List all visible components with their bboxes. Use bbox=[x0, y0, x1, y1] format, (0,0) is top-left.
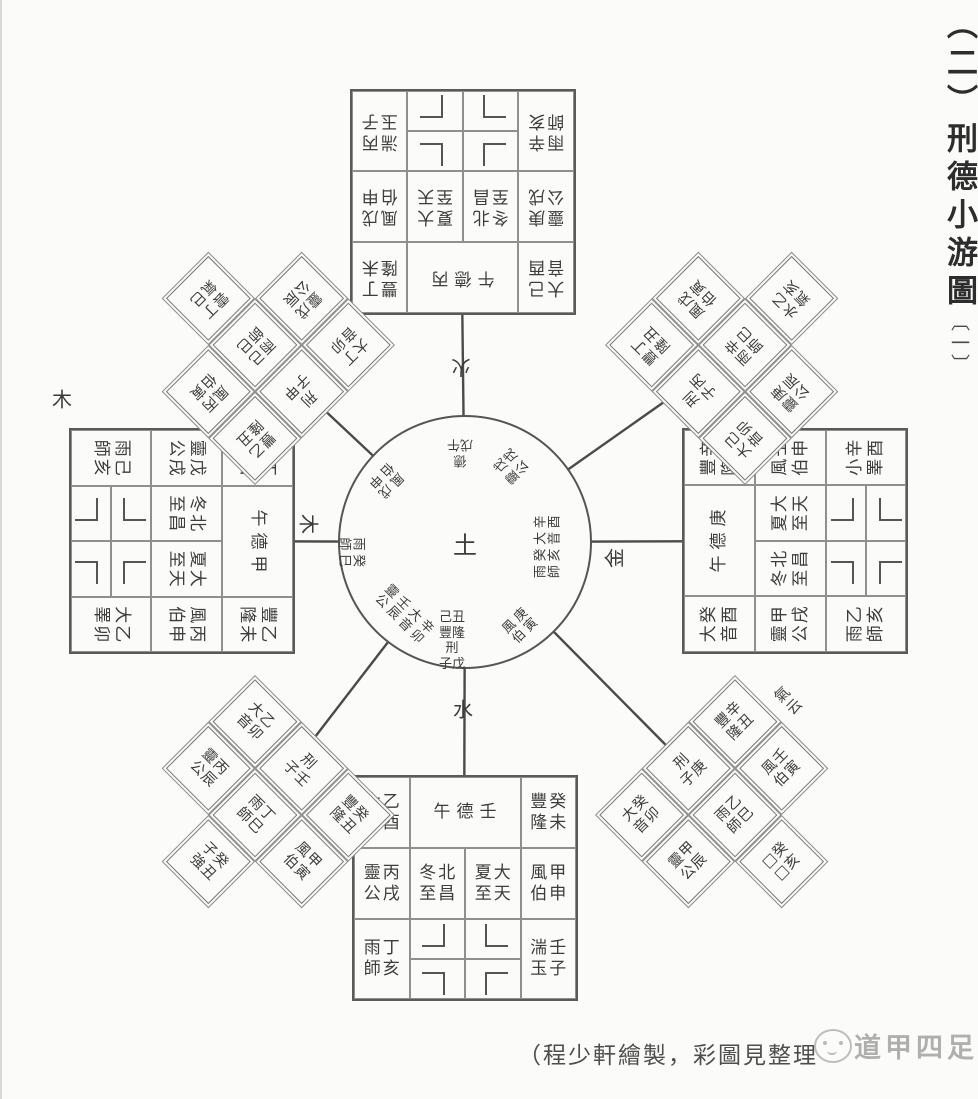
cell-row: 隆未 bbox=[237, 604, 258, 644]
grid-cell: 夏大至天 bbox=[465, 848, 521, 919]
caption: （程少軒繪製，彩圖見整理 bbox=[518, 1036, 818, 1070]
watermark-text: 道甲四足 bbox=[854, 1026, 978, 1065]
bracket-block bbox=[410, 919, 521, 999]
corner-bracket-icon bbox=[76, 498, 99, 521]
grid-cell: 冬北至昌 bbox=[463, 171, 519, 242]
grid-cell-de: 午德壬 bbox=[410, 777, 521, 848]
cell-row: 公戌 bbox=[791, 604, 812, 644]
bracket-block bbox=[408, 91, 519, 171]
corner-bracket-icon bbox=[485, 924, 508, 947]
grid-cell: 小辛睪酉 bbox=[826, 430, 906, 486]
cell-row: 湍壬 bbox=[528, 938, 568, 959]
cell-row: 伯申 bbox=[528, 884, 568, 905]
cell-row: 湍丙 bbox=[360, 131, 400, 152]
circle-text-w: 癸巳雨師 bbox=[338, 533, 366, 567]
cell-row: 豐乙 bbox=[258, 604, 279, 644]
cell-row: 至昌 bbox=[417, 884, 457, 905]
grid-cell: 湍丙玉子 bbox=[352, 91, 408, 171]
text-column: 辛酉 bbox=[533, 516, 561, 532]
grid-cell: 靈丙公戌 bbox=[354, 848, 410, 919]
cell-row: 至昌 bbox=[791, 549, 812, 589]
title-main: 刑德小游圖 bbox=[941, 122, 977, 312]
cell-row: 夏大 bbox=[415, 207, 455, 228]
cell-row: 至天 bbox=[473, 884, 513, 905]
grid-cell: 冬北至昌 bbox=[410, 848, 466, 919]
cell-row: 雨辛 bbox=[526, 131, 566, 152]
corner-bracket-icon bbox=[485, 972, 508, 995]
grid-cell: 豐癸隆未 bbox=[521, 777, 577, 848]
corner-bracket-icon bbox=[879, 498, 902, 521]
cell-row: 雨丁 bbox=[362, 938, 402, 959]
corner-bracket-icon bbox=[483, 144, 506, 167]
cell-row: 公戌 bbox=[526, 186, 566, 207]
cell-row: 靈丙 bbox=[362, 863, 402, 884]
cell-row: 伯申 bbox=[791, 438, 812, 478]
cell-row: 風甲 bbox=[528, 863, 568, 884]
cell-row: 雨乙 bbox=[845, 604, 866, 644]
cell-row: 豐癸 bbox=[528, 792, 568, 813]
cell-row: 伯申 bbox=[360, 186, 400, 207]
grid-cell: 風戊伯申 bbox=[352, 171, 408, 242]
text-column: 癸巳 bbox=[338, 551, 366, 567]
cell-row: 冬北 bbox=[770, 549, 791, 589]
corner-bracket-icon bbox=[124, 498, 147, 521]
corner-bracket-icon bbox=[422, 924, 445, 947]
grid-cell: 豐丁隆未 bbox=[352, 242, 408, 313]
element-label-wood-outer: 木 bbox=[52, 384, 72, 413]
grid-cell: 夏大至天 bbox=[408, 171, 464, 242]
cell-row: 隆未 bbox=[528, 813, 568, 834]
cell-row: 豐丁 bbox=[360, 278, 400, 299]
text-column: 雨師 bbox=[533, 566, 561, 582]
cell-row: 師亥 bbox=[526, 110, 566, 131]
grid-cell: 雨乙師亥 bbox=[826, 597, 906, 653]
grid-cell-de: 午德庚 bbox=[684, 486, 755, 597]
text-column: 癸亥 bbox=[533, 550, 561, 566]
grid-cell: 雨己師亥 bbox=[71, 430, 151, 486]
cell-row: 至天 bbox=[166, 549, 187, 589]
cell-row: 師亥 bbox=[90, 438, 111, 478]
element-label-water: 水 bbox=[453, 694, 473, 723]
grid-cell: 靈戊公戌 bbox=[151, 430, 222, 486]
grid-cell: 風丙伯申 bbox=[151, 597, 222, 653]
grid-cell: 冬北至昌 bbox=[755, 541, 826, 597]
cell-row: 睪卯 bbox=[90, 604, 111, 644]
cell-row: 大癸 bbox=[699, 604, 720, 644]
cell-row: 靈戊 bbox=[187, 438, 208, 478]
cell-row: 至昌 bbox=[166, 493, 187, 533]
grid-cell: 大乙睪卯 bbox=[71, 597, 151, 653]
cell-row: 雨己 bbox=[111, 438, 132, 478]
cell-row: 師亥 bbox=[362, 959, 402, 980]
bracket-block bbox=[71, 486, 151, 597]
cell-row: 冬北 bbox=[471, 207, 511, 228]
text-line: 豐隆 bbox=[439, 625, 465, 641]
cell-row: 大乙 bbox=[111, 604, 132, 644]
cell-row: 隆未 bbox=[360, 257, 400, 278]
grid-cell: 大己音酉 bbox=[519, 242, 575, 313]
cell-row: 大己 bbox=[526, 278, 566, 299]
cell-row: 玉子 bbox=[528, 959, 568, 980]
cell-row: 師亥 bbox=[866, 604, 887, 644]
smiley-face-icon bbox=[814, 1029, 852, 1063]
circle-text-n: 德戊午 bbox=[447, 436, 473, 467]
grid-cell: 湍壬玉子 bbox=[521, 919, 577, 999]
grid-cell: 夏大至天 bbox=[151, 541, 222, 597]
text-line: 刑 bbox=[439, 641, 465, 657]
title-index: （二） bbox=[941, 8, 977, 122]
text-column: 大音 bbox=[533, 533, 561, 549]
cell-row: 冬北 bbox=[187, 493, 208, 533]
text-line: 己丑 bbox=[439, 610, 465, 626]
corner-bracket-icon bbox=[831, 498, 854, 521]
page-title: （二）刑德小游圖〔一〕 bbox=[940, 8, 976, 375]
corner-bracket-icon bbox=[76, 561, 99, 584]
cell-row: 至昌 bbox=[471, 186, 511, 207]
grid-cell: 大癸音酉 bbox=[684, 597, 755, 653]
cell-row: 音酉 bbox=[526, 257, 566, 278]
cell-row: 公戌 bbox=[362, 884, 402, 905]
element-label-metal: 金 bbox=[599, 548, 628, 568]
bracket-block bbox=[826, 486, 906, 597]
grid-cell-de: 午德甲 bbox=[222, 486, 293, 597]
element-label-fire: 火 bbox=[451, 355, 471, 384]
grid-cell-de: 午德丙 bbox=[408, 242, 519, 313]
cell-row: 夏大 bbox=[770, 493, 791, 533]
grid-cell: 冬北至昌 bbox=[151, 486, 222, 542]
grid-cell: 雨丁師亥 bbox=[354, 919, 410, 999]
cell-row: 夏大 bbox=[187, 549, 208, 589]
cell-row: 小辛 bbox=[845, 438, 866, 478]
corner-bracket-icon bbox=[483, 96, 506, 119]
cell-row: 至天 bbox=[415, 186, 455, 207]
cell-row: 靈甲 bbox=[770, 604, 791, 644]
figure-canvas: 大己音酉 午德丙 豐丁隆未 靈庚公戌 冬北至昌 夏大至天 風戊伯申 雨辛師亥 湍… bbox=[0, 0, 978, 1099]
text-line: 德 bbox=[447, 452, 473, 468]
corner-bracket-icon bbox=[420, 96, 443, 119]
cell-row: 風戊 bbox=[360, 207, 400, 228]
corner-bracket-icon bbox=[422, 972, 445, 995]
watermark: 道甲四足 bbox=[814, 1026, 978, 1065]
cell-row: 玉子 bbox=[360, 110, 400, 131]
cell-row: 睪酉 bbox=[866, 438, 887, 478]
corner-bracket-icon bbox=[124, 561, 147, 584]
cell-row: 伯申 bbox=[166, 604, 187, 644]
title-part: 〔一〕 bbox=[948, 312, 970, 375]
cell-row: 風丙 bbox=[187, 604, 208, 644]
grid-cell: 夏大至天 bbox=[755, 486, 826, 542]
grid-cell: 豐乙隆未 bbox=[222, 597, 293, 653]
cell-row: 冬北 bbox=[417, 863, 457, 884]
cell-row: 靈庚 bbox=[526, 207, 566, 228]
square-grid-top: 大己音酉 午德丙 豐丁隆未 靈庚公戌 冬北至昌 夏大至天 風戊伯申 雨辛師亥 湍… bbox=[350, 89, 576, 315]
earth-center-label: 土 bbox=[453, 526, 477, 561]
grid-cell: 雨辛師亥 bbox=[519, 91, 575, 171]
corner-bracket-icon bbox=[420, 144, 443, 167]
square-grid-bottom: 大乙音酉 午德壬 豐癸隆未 靈丙公戌 冬北至昌 夏大至天 風甲伯申 雨丁師亥 湍… bbox=[352, 775, 578, 1001]
corner-bracket-icon bbox=[831, 561, 854, 584]
cell-row: 公戌 bbox=[166, 438, 187, 478]
square-grid-right: 大癸音酉 午德庚 豐辛隆未 靈甲公戌 冬北至昌 夏大至天 風壬伯申 雨乙師亥 小… bbox=[682, 428, 908, 654]
grid-cell: 靈庚公戌 bbox=[519, 171, 575, 242]
cell-row: 至天 bbox=[791, 493, 812, 533]
corner-bracket-icon bbox=[879, 561, 902, 584]
cell-row: 音酉 bbox=[720, 604, 741, 644]
cell-row: 夏大 bbox=[473, 863, 513, 884]
grid-cell: 風甲伯申 bbox=[521, 848, 577, 919]
grid-cell: 靈甲公戌 bbox=[755, 597, 826, 653]
circle-text-e: 辛酉大音癸亥雨師 bbox=[533, 515, 561, 582]
text-line: 戊午 bbox=[447, 436, 473, 452]
text-column: 雨師 bbox=[338, 534, 366, 550]
text-line: 子戊 bbox=[439, 657, 465, 673]
element-label-wood: 木 bbox=[296, 514, 325, 534]
circle-text-s: 己丑豐隆刑子戊 bbox=[439, 610, 465, 672]
